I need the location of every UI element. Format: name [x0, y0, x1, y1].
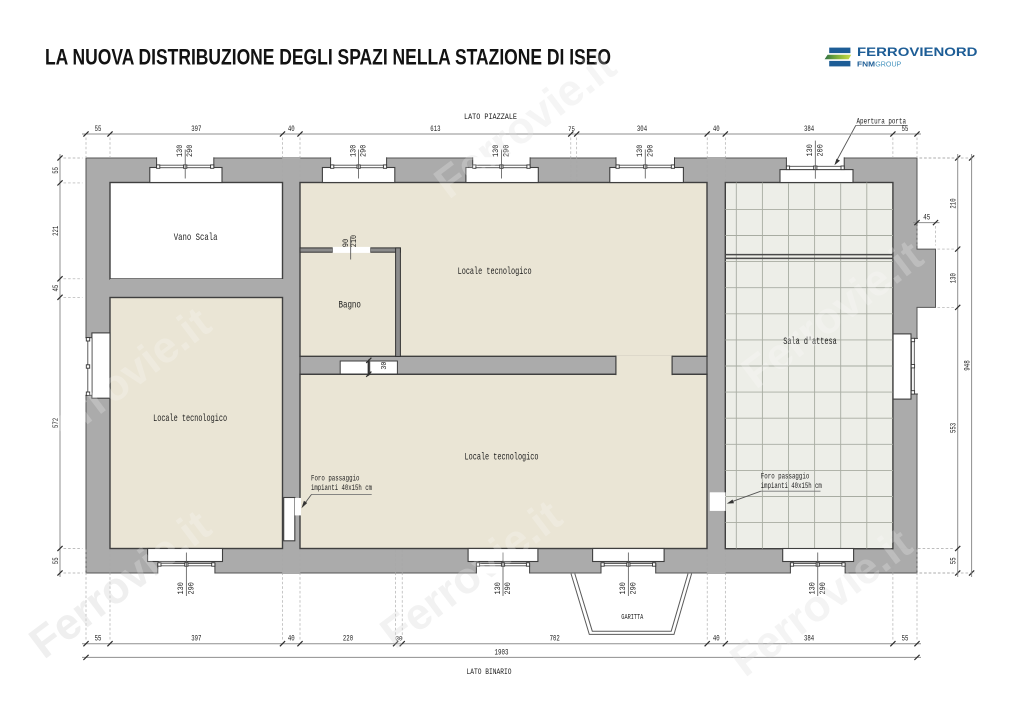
svg-text:221: 221: [52, 226, 61, 236]
svg-text:30: 30: [381, 361, 389, 369]
svg-text:200: 200: [816, 144, 825, 156]
svg-text:Vano Scala: Vano Scala: [174, 232, 218, 244]
svg-text:290: 290: [629, 582, 638, 594]
svg-text:290: 290: [646, 145, 655, 157]
svg-text:impianti 40x15h cm: impianti 40x15h cm: [761, 483, 822, 491]
svg-text:40: 40: [713, 634, 720, 643]
svg-text:55: 55: [52, 557, 61, 564]
svg-text:55: 55: [95, 634, 102, 643]
svg-text:290: 290: [187, 582, 196, 594]
svg-text:130: 130: [349, 145, 358, 157]
svg-text:FERROVIENORD: FERROVIENORD: [857, 47, 978, 59]
svg-text:Locale tecnologico: Locale tecnologico: [465, 452, 539, 464]
svg-text:1903: 1903: [495, 648, 509, 657]
svg-text:553: 553: [949, 423, 958, 433]
svg-text:GARITTA: GARITTA: [621, 614, 643, 622]
svg-text:LATO BINARIO: LATO BINARIO: [467, 669, 512, 677]
svg-text:130: 130: [619, 582, 628, 594]
svg-text:397: 397: [191, 125, 201, 134]
svg-text:397: 397: [191, 634, 201, 643]
svg-text:130: 130: [949, 273, 958, 283]
svg-text:Locale tecnologico: Locale tecnologico: [458, 266, 532, 278]
svg-text:304: 304: [637, 125, 647, 134]
svg-text:40: 40: [288, 634, 295, 643]
svg-text:FNM: FNM: [857, 60, 875, 69]
svg-text:384: 384: [804, 125, 814, 134]
svg-text:55: 55: [902, 125, 909, 134]
svg-text:130: 130: [636, 145, 645, 157]
svg-text:Foro passaggio: Foro passaggio: [311, 476, 360, 484]
svg-text:948: 948: [963, 360, 972, 371]
svg-text:40: 40: [713, 125, 720, 134]
svg-text:130: 130: [177, 582, 186, 594]
svg-text:LA NUOVA DISTRIBUZIONE DEGLI S: LA NUOVA DISTRIBUZIONE DEGLI SPAZI NELLA…: [45, 45, 611, 70]
svg-text:45: 45: [52, 285, 61, 292]
svg-text:55: 55: [949, 557, 958, 564]
svg-text:130: 130: [806, 144, 815, 156]
svg-text:55: 55: [95, 125, 102, 134]
svg-text:130: 130: [176, 145, 185, 157]
svg-text:210: 210: [949, 198, 958, 208]
svg-text:220: 220: [343, 634, 353, 643]
svg-text:290: 290: [186, 145, 195, 157]
svg-text:45: 45: [923, 214, 930, 223]
svg-text:55: 55: [902, 634, 909, 643]
svg-text:210: 210: [350, 235, 359, 247]
svg-text:613: 613: [430, 125, 440, 134]
svg-text:75: 75: [568, 126, 575, 133]
svg-text:impianti 40x15h cm: impianti 40x15h cm: [311, 485, 372, 493]
svg-text:702: 702: [550, 634, 560, 643]
svg-text:290: 290: [504, 582, 513, 594]
svg-text:290: 290: [360, 145, 369, 157]
svg-text:40: 40: [288, 125, 295, 134]
svg-text:Bagno: Bagno: [338, 300, 361, 312]
svg-text:GROUP: GROUP: [875, 60, 901, 69]
svg-text:Foro passaggio: Foro passaggio: [761, 473, 810, 481]
svg-text:Locale tecnologico: Locale tecnologico: [153, 413, 227, 425]
svg-text:55: 55: [52, 167, 61, 174]
